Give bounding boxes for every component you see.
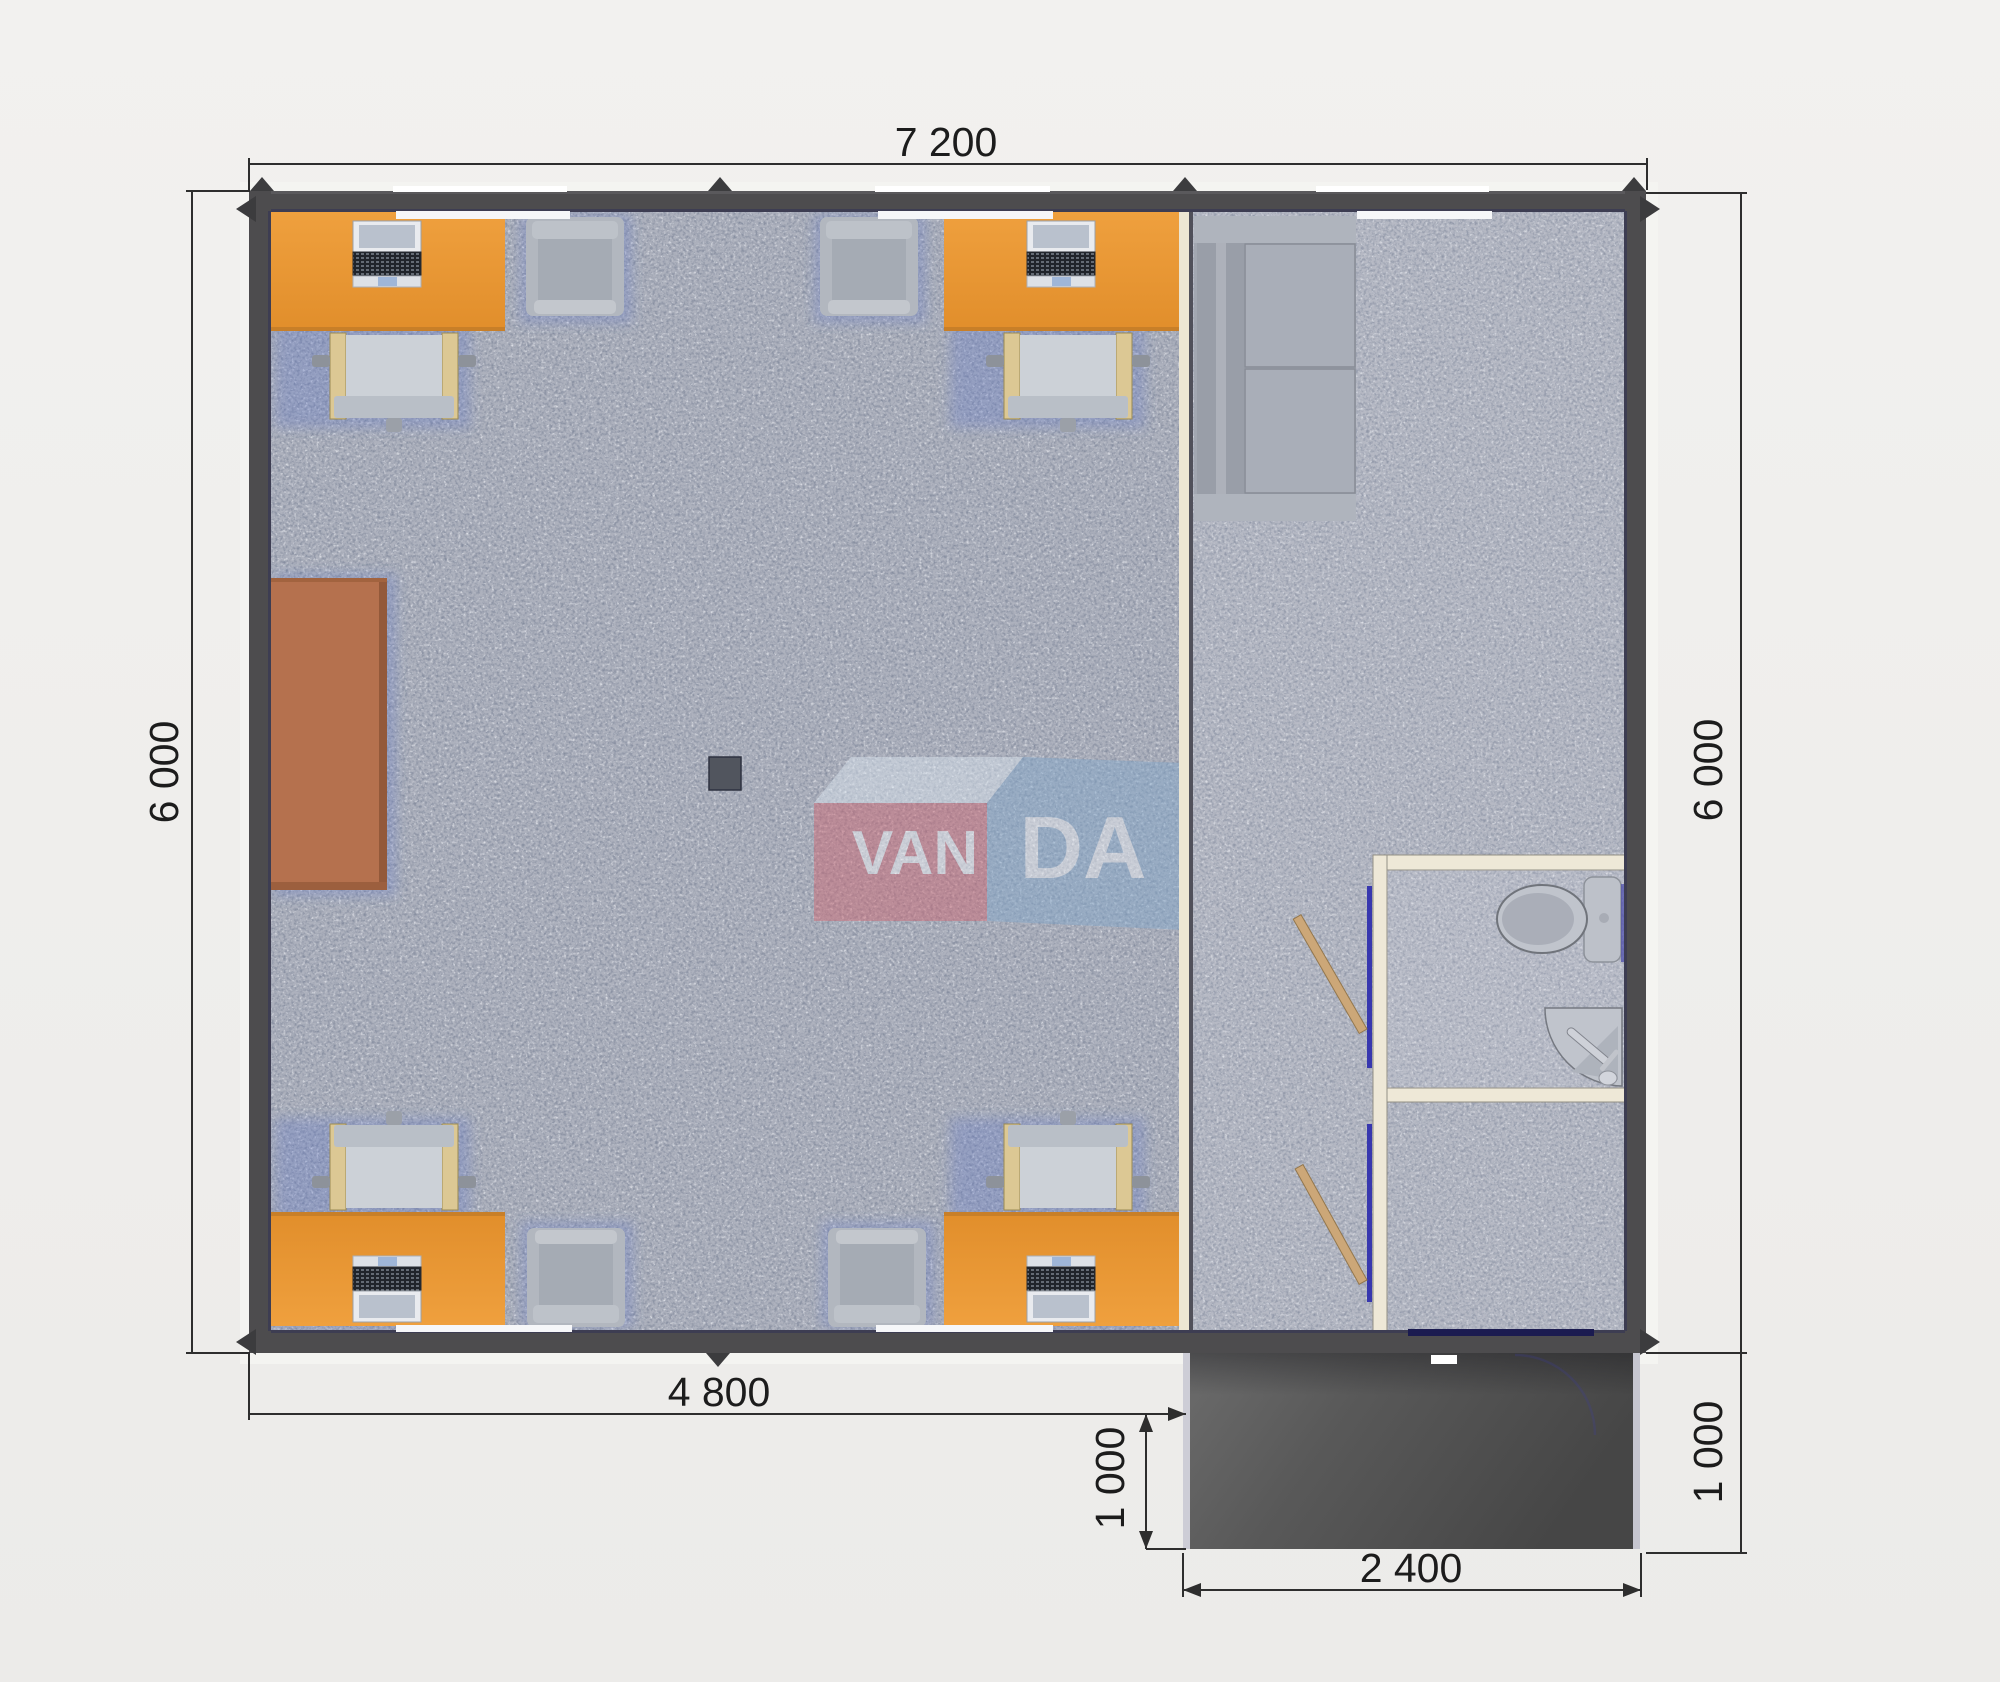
svg-text:DA: DA	[1019, 798, 1146, 897]
svg-text:4 800: 4 800	[668, 1369, 771, 1415]
svg-text:6 000: 6 000	[1685, 719, 1731, 822]
svg-text:2 400: 2 400	[1360, 1545, 1463, 1591]
svg-text:1 000: 1 000	[1087, 1427, 1133, 1530]
svg-text:6 000: 6 000	[141, 721, 187, 824]
svg-text:1 000: 1 000	[1685, 1401, 1731, 1504]
svg-text:7 200: 7 200	[895, 119, 998, 165]
svg-text:VAN: VAN	[852, 819, 978, 888]
